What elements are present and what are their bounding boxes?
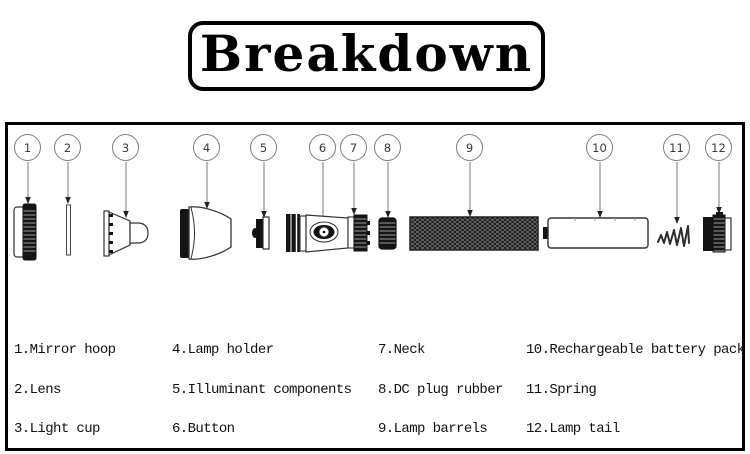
legend-item-name: DC plug rubber <box>394 382 503 398</box>
legend-item-name: Mirror hoop <box>30 342 116 358</box>
legend-item-number: 2. <box>14 382 30 398</box>
legend-item-number: 7. <box>378 342 394 358</box>
legend-item-name: Lamp holder <box>188 342 274 358</box>
legend-item-name: Rechargeable battery pack <box>549 342 744 358</box>
lamp-barrels-part <box>410 217 538 250</box>
legend-item-number: 6. <box>172 421 188 437</box>
mirror-hoop-part <box>14 204 36 260</box>
legend-item-11: 11.Spring <box>526 382 748 422</box>
callout-circle-5: 5 <box>250 134 277 161</box>
legend-item-name: Button <box>188 421 235 437</box>
callout-circle-11: 11 <box>663 134 690 161</box>
legend-item-7: 7.Neck <box>378 342 526 382</box>
legend-item-4: 4.Lamp holder <box>172 342 378 382</box>
legend-item-8: 8.DC plug rubber <box>378 382 526 422</box>
callout-circle-9: 9 <box>456 134 483 161</box>
illuminant-components-part <box>252 217 269 249</box>
legend-item-number: 12. <box>526 421 549 437</box>
legend-item-number: 3. <box>14 421 30 437</box>
legend-item-12: 12.Lamp tail <box>526 421 748 454</box>
callout-circle-8: 8 <box>374 134 401 161</box>
legend-item-name: Spring <box>549 382 596 398</box>
legend-item-number: 10. <box>526 342 549 358</box>
legend-item-9: 9.Lamp barrels <box>378 421 526 454</box>
lens-part <box>67 205 71 255</box>
neck-part <box>354 215 370 251</box>
dc-plug-rubber-part <box>379 218 396 249</box>
callout-circle-3: 3 <box>112 134 139 161</box>
battery-pack-part <box>543 218 648 248</box>
callout-circle-4: 4 <box>193 134 220 161</box>
callout-circle-7: 7 <box>340 134 367 161</box>
legend-item-name: Neck <box>394 342 425 358</box>
callout-circle-1: 1 <box>14 134 41 161</box>
callout-circle-12: 12 <box>705 134 732 161</box>
legend-item-5: 5.Illuminant components <box>172 382 378 422</box>
legend-item-number: 8. <box>378 382 394 398</box>
legend-item-number: 9. <box>378 421 394 437</box>
callout-circle-6: 6 <box>309 134 336 161</box>
legend-item-3: 3.Light cup <box>14 421 172 454</box>
legend-item-1: 1.Mirror hoop <box>14 342 172 382</box>
legend-item-number: 1. <box>14 342 30 358</box>
legend-item-number: 4. <box>172 342 188 358</box>
callout-circle-10: 10 <box>586 134 613 161</box>
legend-item-name: Light cup <box>30 421 100 437</box>
button-part <box>286 214 354 252</box>
legend-item-2: 2.Lens <box>14 382 172 422</box>
legend-item-name: Lens <box>30 382 61 398</box>
callout-circle-2: 2 <box>54 134 81 161</box>
legend-item-name: Illuminant components <box>188 382 352 398</box>
legend-item-number: 5. <box>172 382 188 398</box>
legend-item-name: Lamp barrels <box>394 421 488 437</box>
legend-item-name: Lamp tail <box>549 421 619 437</box>
spring-part <box>658 226 689 246</box>
lamp-holder-part <box>180 207 231 259</box>
page: Breakdown 1 2 3 4 5 6 7 8 9 10 11 12 <box>0 0 750 454</box>
parts-legend: 1.Mirror hoop 2.Lens 3.Light cup 4.Lamp … <box>14 342 748 454</box>
lamp-tail-part <box>703 212 731 252</box>
legend-item-10: 10.Rechargeable battery pack <box>526 342 748 382</box>
legend-item-number: 11. <box>526 382 549 398</box>
legend-item-6: 6.Button <box>172 421 378 454</box>
